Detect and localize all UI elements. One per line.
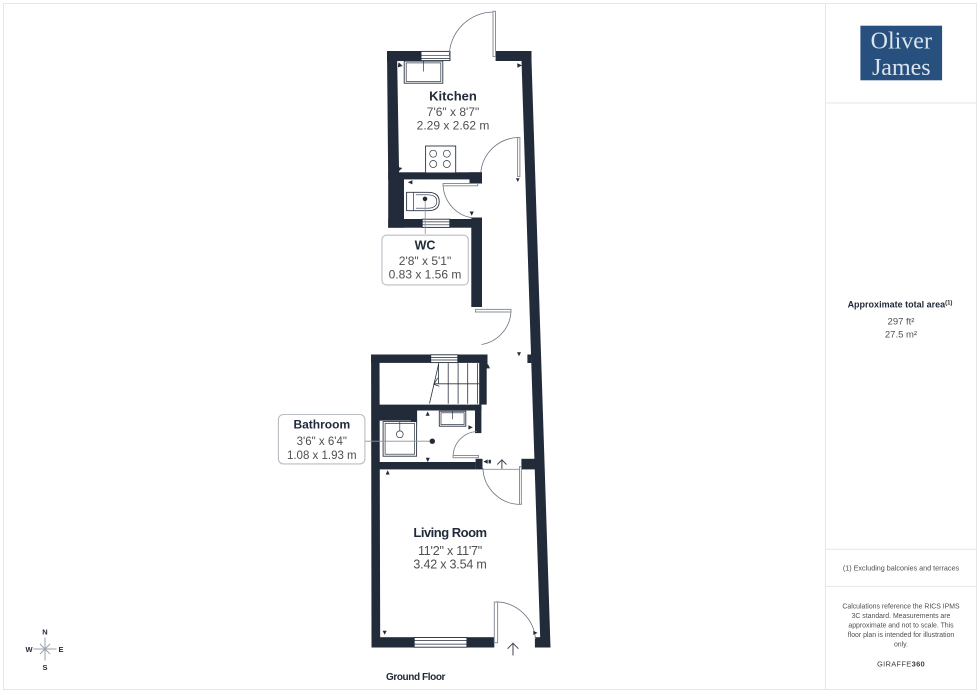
svg-text:Living Room: Living Room	[413, 525, 486, 540]
svg-text:Bathroom: Bathroom	[293, 417, 350, 431]
svg-text:2.29 x 2.62 m: 2.29 x 2.62 m	[417, 119, 490, 133]
svg-text:floor plan is intended for ill: floor plan is intended for illustration	[848, 632, 955, 639]
svg-text:James: James	[872, 55, 931, 81]
svg-text:Ground Floor: Ground Floor	[386, 672, 446, 683]
svg-text:Oliver: Oliver	[871, 28, 932, 54]
svg-text:1.08 x 1.93 m: 1.08 x 1.93 m	[287, 450, 357, 462]
svg-text:only.: only.	[894, 642, 908, 649]
svg-text:7'6" x 8'7": 7'6" x 8'7"	[427, 105, 479, 119]
svg-text:W: W	[25, 645, 33, 654]
svg-text:N: N	[42, 628, 47, 637]
svg-text:Calculations reference the RIC: Calculations reference the RICS IPMS	[842, 604, 960, 611]
svg-text:S: S	[42, 663, 47, 672]
svg-text:Kitchen: Kitchen	[429, 88, 477, 103]
svg-text:2'8" x 5'1": 2'8" x 5'1"	[399, 254, 451, 268]
svg-text:(1) Excluding balconies and te: (1) Excluding balconies and terraces	[843, 564, 960, 573]
svg-text:WC: WC	[415, 238, 436, 252]
svg-text:3.42 x 3.54 m: 3.42 x 3.54 m	[413, 557, 486, 571]
svg-text:approximate and not to scale.: approximate and not to scale. This	[848, 623, 954, 630]
svg-text:297 ft²: 297 ft²	[888, 317, 915, 328]
svg-text:3'6" x 6'4": 3'6" x 6'4"	[297, 436, 347, 448]
svg-text:E: E	[58, 645, 63, 654]
svg-text:GIRAFFE360: GIRAFFE360	[877, 660, 925, 669]
svg-text:11'2" x 11'7": 11'2" x 11'7"	[418, 544, 482, 558]
svg-text:3C standard. Measurements are: 3C standard. Measurements are	[852, 613, 951, 620]
svg-text:Approximate total area(1): Approximate total area(1)	[848, 300, 953, 310]
svg-text:0.83 x 1.56 m: 0.83 x 1.56 m	[389, 268, 462, 282]
svg-text:27.5 m²: 27.5 m²	[885, 330, 917, 341]
